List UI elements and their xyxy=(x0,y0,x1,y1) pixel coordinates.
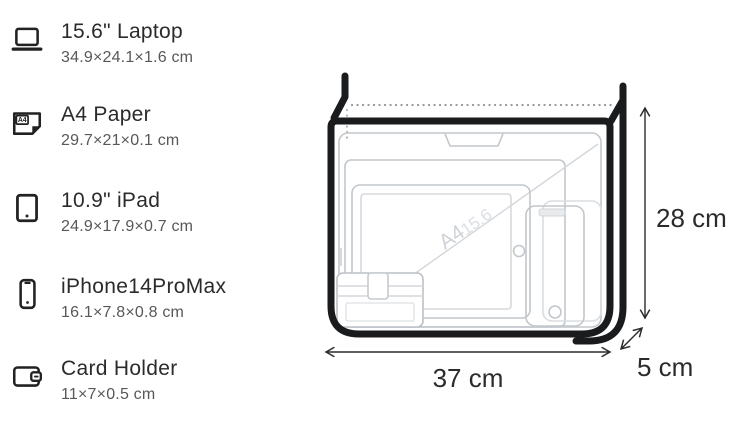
iphone-depth-outline xyxy=(543,201,601,321)
card-holder-outline xyxy=(337,273,423,327)
depth-arrow xyxy=(621,328,642,349)
product-dimension-infographic: 15.6" Laptop 34.9×24.1×1.6 cm A4 A4 Pape… xyxy=(0,0,750,426)
height-dimension-label: 28 cm xyxy=(656,203,727,233)
width-dimension-label: 37 cm xyxy=(433,363,504,393)
depth-dimension-label: 5 cm xyxy=(637,352,693,382)
bag-diagram: A4 15.6 xyxy=(0,0,750,426)
iphone-outline xyxy=(526,206,584,326)
